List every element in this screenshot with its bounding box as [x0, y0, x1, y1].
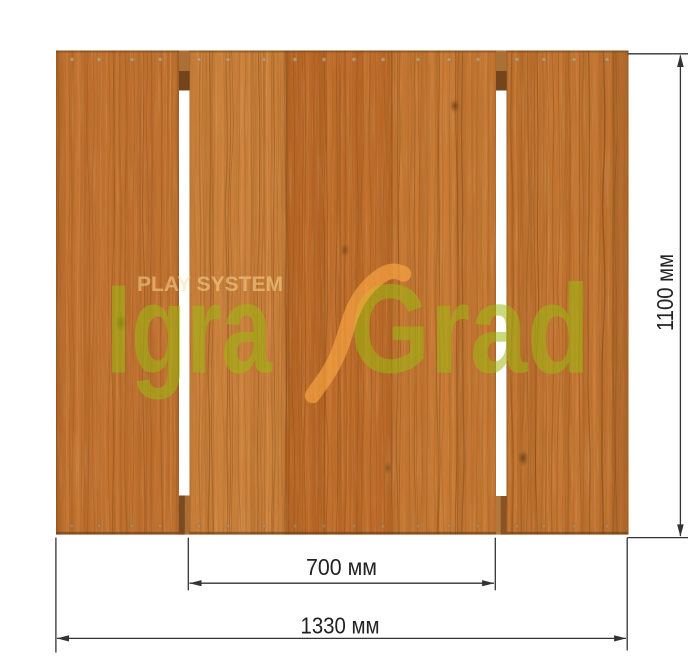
svg-text:1100 мм: 1100 мм [652, 254, 678, 331]
svg-text:1330 мм: 1330 мм [301, 613, 380, 639]
svg-text:Igra: Igra [106, 259, 273, 400]
svg-text:700 мм: 700 мм [306, 554, 377, 580]
